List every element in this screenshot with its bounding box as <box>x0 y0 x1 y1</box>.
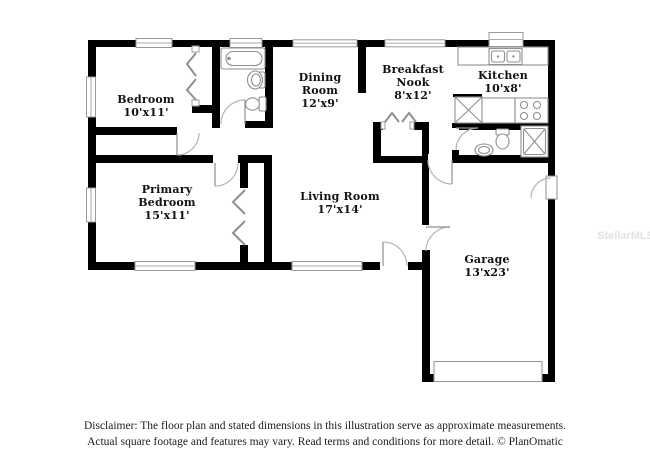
window <box>385 40 445 47</box>
shower-icon <box>521 126 548 157</box>
toilet-icon <box>246 97 267 111</box>
refrigerator-icon <box>455 97 482 123</box>
room-name: Bedroom <box>117 93 175 106</box>
disclaimer-line-2: Actual square footage and features may v… <box>0 434 650 450</box>
sink-icon <box>248 71 266 89</box>
window <box>87 188 96 222</box>
closet-bifold-door <box>381 113 416 129</box>
toilet-icon <box>496 129 509 149</box>
door-arc <box>421 225 450 251</box>
disclaimer: Disclaimer: The floor plan and stated di… <box>0 418 650 450</box>
room-dims: 10'x11' <box>96 106 196 119</box>
door-arc <box>177 126 199 155</box>
room-label-garage: Garage13'x23' <box>447 253 527 279</box>
room-label-breakfast-nook: Breakfast Nook8'x12' <box>373 63 453 102</box>
room-dims: 10'x8' <box>463 82 543 95</box>
window <box>293 40 357 47</box>
room-label-kitchen: Kitchen10'x8' <box>463 69 543 95</box>
closet-bifold-door <box>233 190 245 245</box>
floor-plan: Bedroom10'x11' Dining Room12'x9' Breakfa… <box>0 0 650 472</box>
room-name: Dining Room <box>299 71 342 97</box>
room-dims: 13'x23' <box>447 266 527 279</box>
kitchen-sink-icon <box>489 49 522 65</box>
room-name: Primary Bedroom <box>138 183 196 209</box>
window <box>292 262 362 271</box>
door-arc <box>428 154 452 184</box>
room-dims: 8'x12' <box>373 89 453 102</box>
kitchen-lower-counter <box>482 98 515 123</box>
room-name: Kitchen <box>478 69 528 82</box>
door-arc <box>220 100 245 129</box>
stove-icon <box>515 98 548 123</box>
door-arc <box>452 128 478 150</box>
window <box>135 262 195 271</box>
room-dims: 17'x14' <box>300 203 380 216</box>
room-name: Breakfast Nook <box>382 63 444 89</box>
stellar-mls-watermark: StellarMLS <box>584 230 650 242</box>
room-label-bedroom: Bedroom10'x11' <box>96 93 196 119</box>
room-label-primary-bedroom: Primary Bedroom15'x11' <box>132 183 202 222</box>
room-dims: 15'x11' <box>132 209 202 222</box>
room-label-living-room: Living Room17'x14' <box>300 190 380 216</box>
garage-door <box>434 362 542 382</box>
sink-icon <box>475 144 493 156</box>
room-name: Living Room <box>300 190 380 203</box>
door-arc <box>213 154 238 186</box>
front-door-arc <box>380 242 408 271</box>
disclaimer-line-1: Disclaimer: The floor plan and stated di… <box>0 418 650 434</box>
window <box>87 77 96 117</box>
room-label-dining-room: Dining Room12'x9' <box>280 71 360 110</box>
window <box>136 39 172 48</box>
room-dims: 12'x9' <box>280 97 360 110</box>
door-arc <box>531 176 557 199</box>
bathtub-icon <box>221 48 265 69</box>
kitchen-garden-window <box>489 33 523 47</box>
room-name: Garage <box>464 253 509 266</box>
window <box>230 39 262 48</box>
